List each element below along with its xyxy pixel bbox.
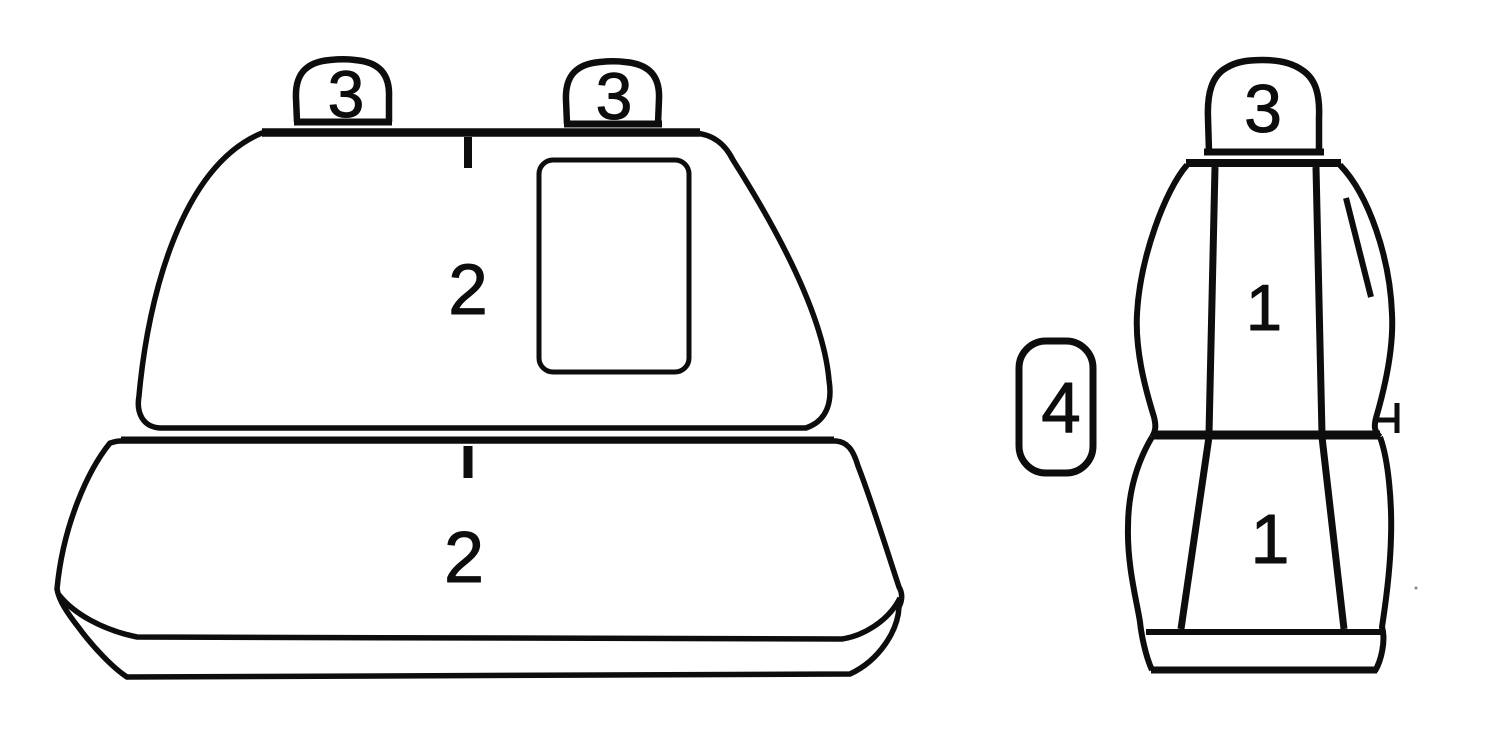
svg-text:4: 4 bbox=[1041, 369, 1081, 448]
svg-text:3: 3 bbox=[596, 59, 633, 133]
svg-text:3: 3 bbox=[328, 57, 365, 131]
svg-text:1: 1 bbox=[1246, 271, 1282, 344]
svg-text:1: 1 bbox=[1251, 500, 1290, 578]
svg-text:3: 3 bbox=[1244, 71, 1282, 147]
svg-text:2: 2 bbox=[444, 518, 484, 598]
svg-text:2: 2 bbox=[448, 251, 488, 330]
